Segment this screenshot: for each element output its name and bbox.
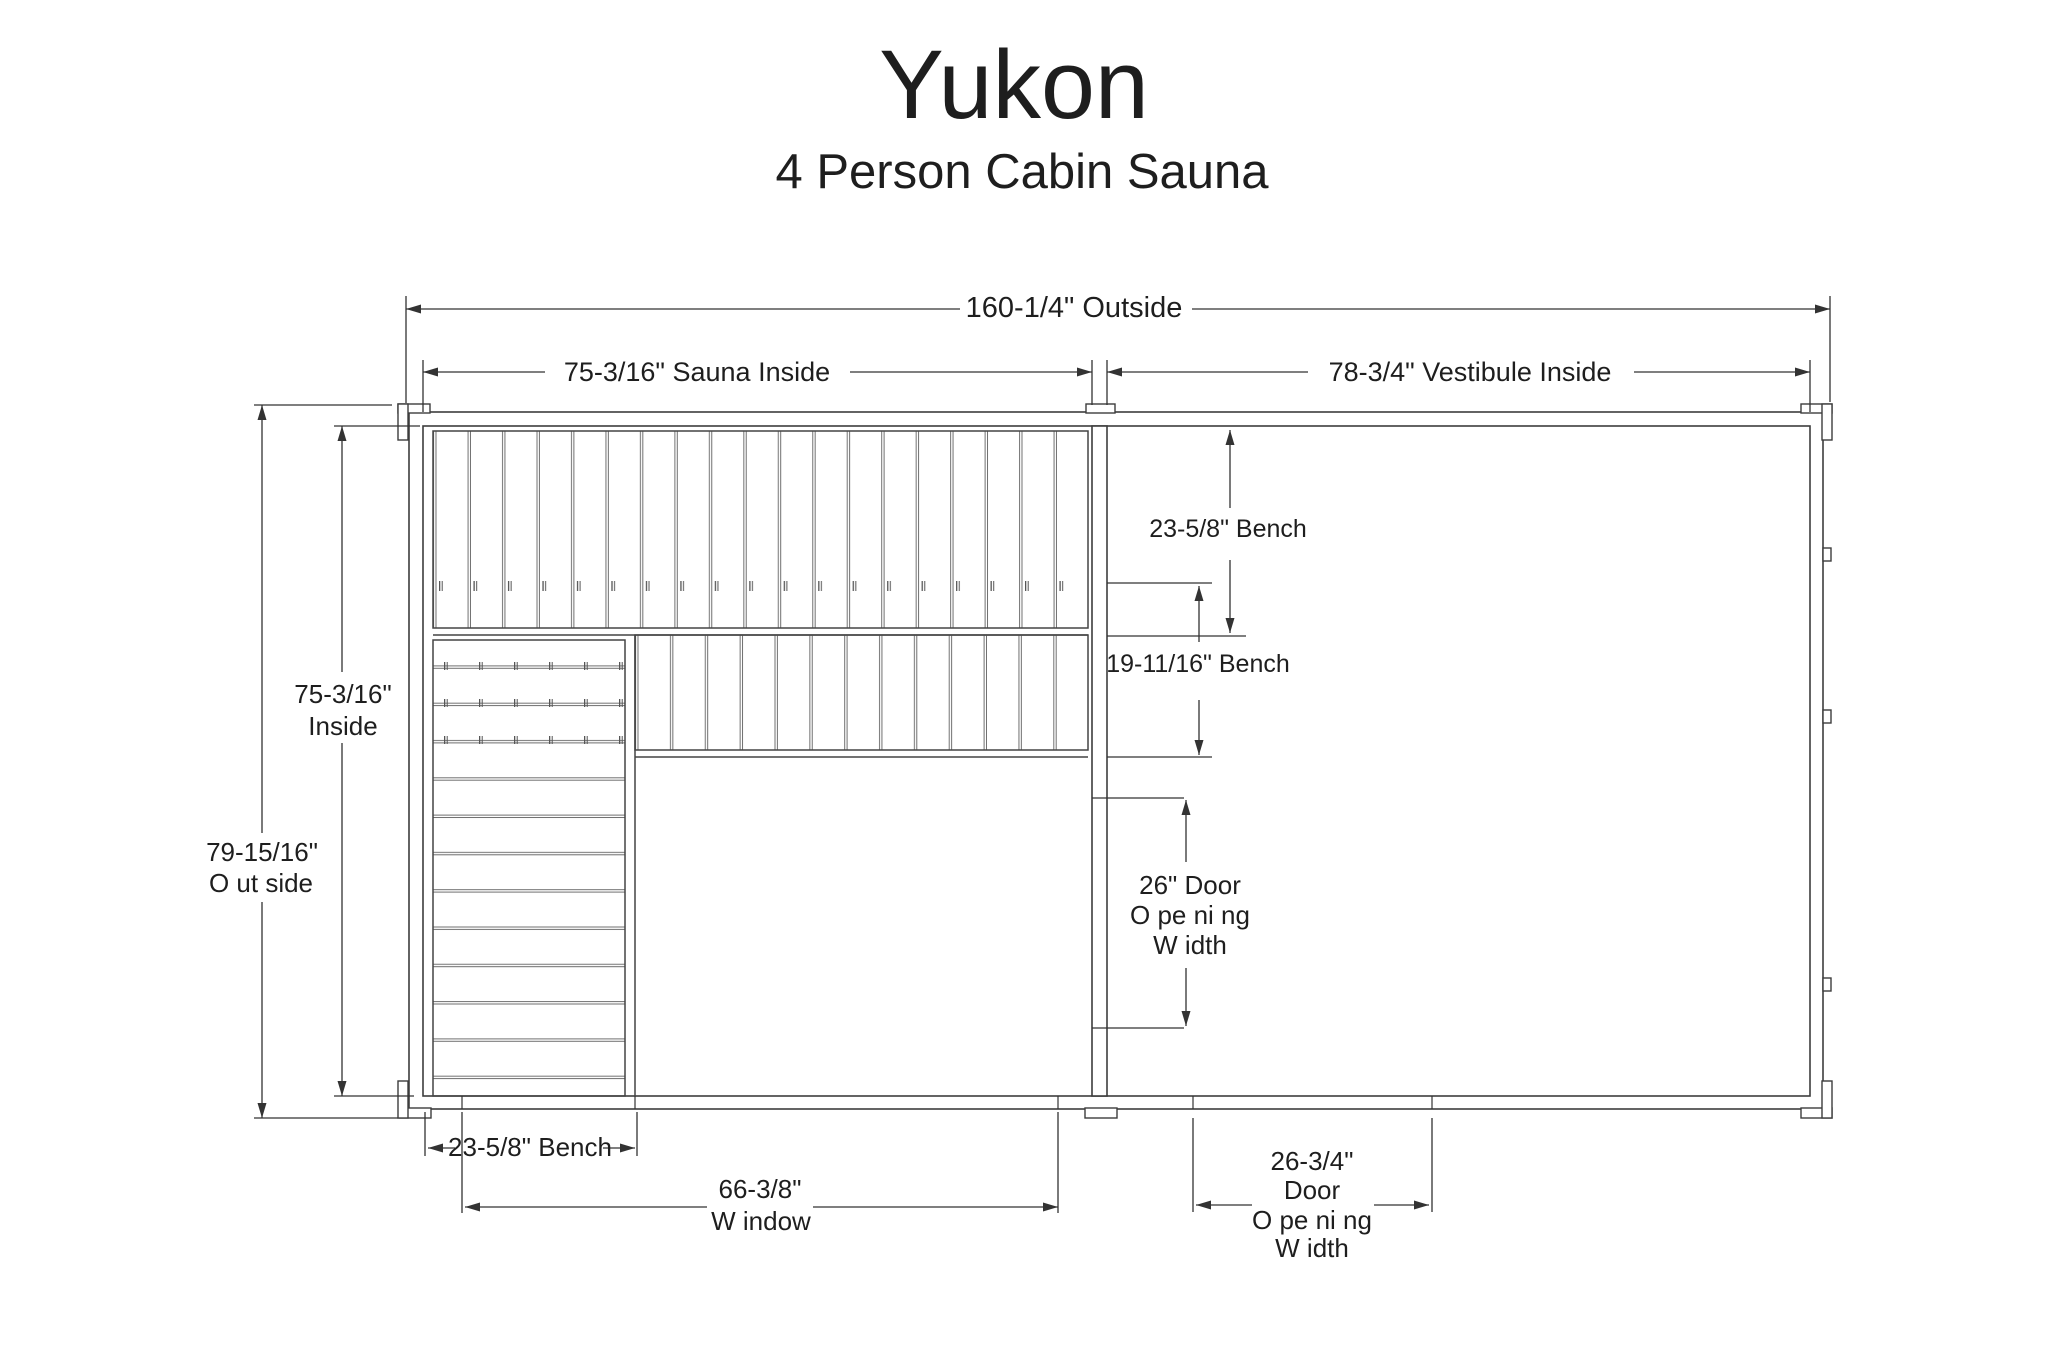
- side-bench-slat-joints-2: [436, 699, 623, 707]
- divider-wall: [1092, 426, 1107, 1096]
- dim-interior-door-line2: O pe ni ng: [1130, 900, 1250, 930]
- dim-interior-door-line3: W idth: [1153, 930, 1227, 960]
- dim-sauna-inside: 75-3/16" Sauna Inside: [423, 357, 1107, 412]
- tab-bottom-left-leg: [398, 1081, 408, 1118]
- dim-inside-height-value: 75-3/16": [294, 679, 391, 709]
- side-bench: [433, 640, 625, 1096]
- middle-bench: [635, 635, 1088, 750]
- dim-window-width: 66-3/8" W indow: [462, 1112, 1058, 1236]
- dim-exterior-door-opening: 26-3/4" Door O pe ni ng W idth: [1193, 1118, 1432, 1263]
- page: Yukon 4 Person Cabin Sauna: [0, 0, 2048, 1365]
- upper-bench: [433, 431, 1088, 628]
- dim-exterior-door-line1: 26-3/4": [1271, 1146, 1354, 1176]
- dim-upper-bench-label: 23-5/8" Bench: [1149, 515, 1307, 543]
- tab-top-left-leg: [398, 404, 408, 440]
- dim-outside-height-value: 79-15/16": [206, 837, 318, 867]
- dim-interior-door-line1: 26" Door: [1139, 870, 1241, 900]
- dim-exterior-door-line3: O pe ni ng: [1252, 1205, 1372, 1235]
- tab-bottom-right-leg: [1822, 1081, 1832, 1118]
- dim-vestibule-inside-label: 78-3/4" Vestibule Inside: [1329, 357, 1612, 387]
- tab-right-wall-1: [1823, 548, 1831, 561]
- dim-sauna-inside-label: 75-3/16" Sauna Inside: [564, 357, 830, 387]
- dim-outside-width-label: 160-1/4" Outside: [966, 292, 1183, 324]
- dim-inside-height: 75-3/16" Inside: [294, 426, 420, 1096]
- dim-window-value: 66-3/8": [719, 1174, 802, 1204]
- dim-side-bench-width: 23-5/8" Bench: [425, 1112, 637, 1162]
- dim-inside-height-label: Inside: [308, 711, 377, 741]
- tab-top-middle: [1086, 404, 1115, 413]
- sauna-floor-plan: Yukon 4 Person Cabin Sauna: [0, 0, 2048, 1365]
- dim-outside-height: 79-15/16" O ut side: [206, 405, 398, 1118]
- page-title: Yukon: [879, 30, 1149, 139]
- tab-right-wall-2: [1823, 710, 1831, 723]
- dim-window-label: W indow: [711, 1206, 811, 1236]
- tab-bottom-middle: [1085, 1108, 1117, 1118]
- dim-outside-height-label: O ut side: [209, 868, 313, 898]
- tab-right-wall-3: [1823, 978, 1831, 991]
- dim-side-bench-label: 23-5/8" Bench: [448, 1132, 612, 1162]
- tab-top-right-leg: [1822, 404, 1832, 440]
- side-bench-slat-joints-1: [436, 662, 623, 670]
- dim-vestibule-inside: 78-3/4" Vestibule Inside: [1107, 357, 1810, 412]
- side-bench-slat-joints-3: [436, 736, 623, 744]
- dim-exterior-door-line2: Door: [1284, 1175, 1341, 1205]
- upper-bench-slat-joints: [436, 581, 1086, 591]
- dim-exterior-door-line4: W idth: [1275, 1233, 1349, 1263]
- dim-lower-bench-label: 19-11/16" Bench: [1106, 650, 1290, 678]
- page-subtitle: 4 Person Cabin Sauna: [775, 145, 1269, 199]
